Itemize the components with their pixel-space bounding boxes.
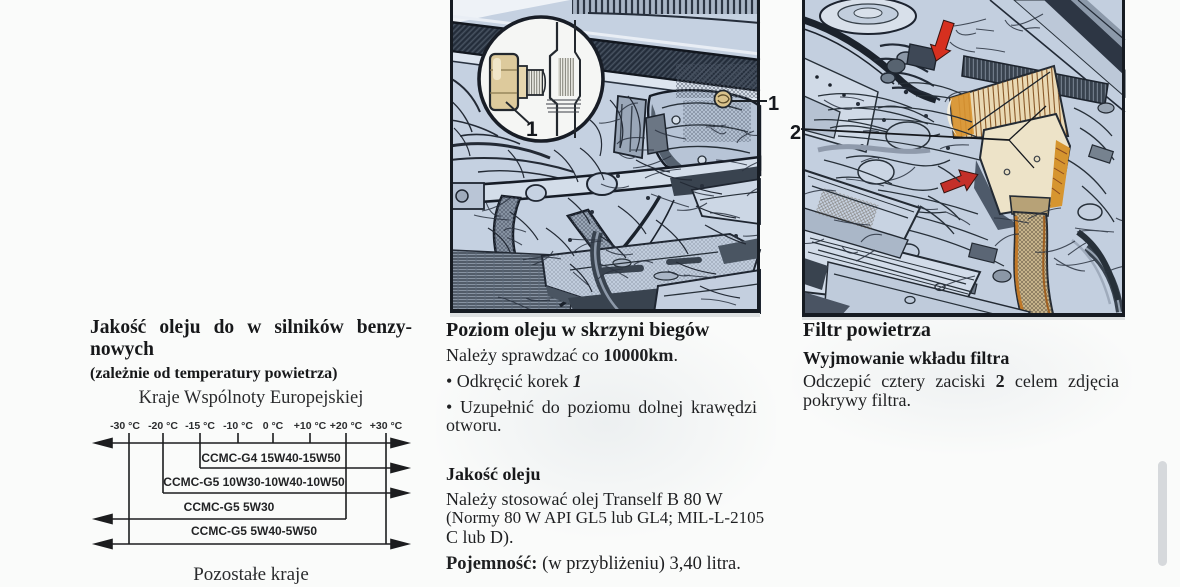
svg-text:0 °C: 0 °C <box>263 420 284 432</box>
svg-text:CCMC-G5 10W30-10W40-10W50: CCMC-G5 10W30-10W40-10W50 <box>163 475 345 489</box>
svg-text:-15 °C: -15 °C <box>185 420 215 432</box>
svg-text:2: 2 <box>790 122 801 144</box>
svg-text:+30 °C: +30 °C <box>370 420 403 432</box>
svg-text:-20 °C: -20 °C <box>148 420 178 432</box>
svg-text:1: 1 <box>768 93 779 115</box>
svg-text:CCMC-G4 15W40-15W50: CCMC-G4 15W40-15W50 <box>201 451 341 465</box>
svg-text:1: 1 <box>526 118 538 141</box>
svg-text:CCMC-G5 5W40-5W50: CCMC-G5 5W40-5W50 <box>191 524 317 538</box>
svg-text:-30 °C: -30 °C <box>110 420 140 432</box>
svg-text:+10 °C: +10 °C <box>294 420 327 432</box>
svg-text:-10 °C: -10 °C <box>223 420 253 432</box>
svg-text:+20 °C: +20 °C <box>330 420 363 432</box>
svg-text:CCMC-G5 5W30: CCMC-G5 5W30 <box>184 500 275 514</box>
